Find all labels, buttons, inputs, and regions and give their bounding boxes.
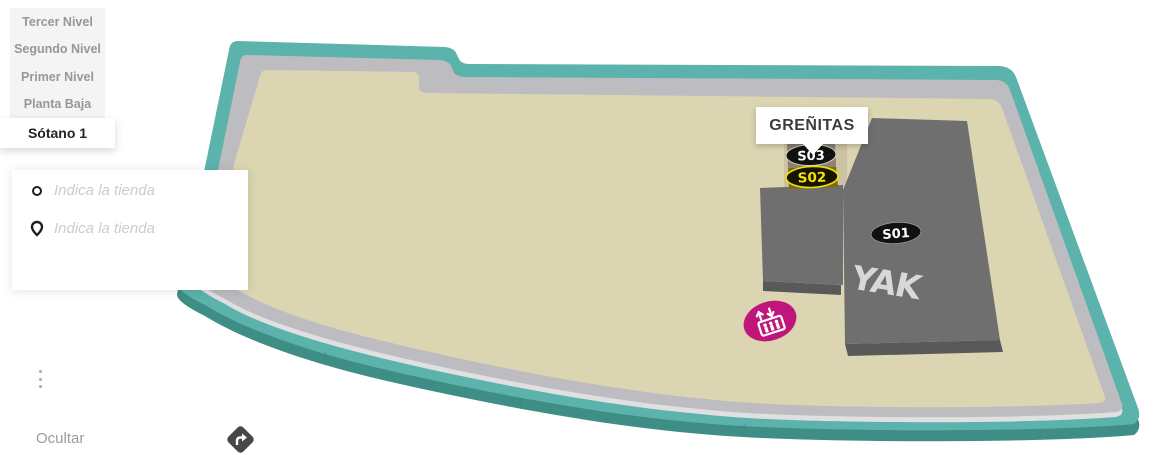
store-tooltip: GREÑITAS [756, 107, 868, 144]
origin-store-input[interactable] [54, 182, 224, 199]
route-search-card: Ocultar [12, 170, 248, 290]
destination-pin-icon [30, 220, 44, 237]
route-dots-icon [39, 370, 42, 388]
store-tooltip-label: GREÑITAS [769, 117, 854, 135]
hide-panel-link[interactable]: Ocultar [36, 430, 84, 447]
badge-s02-label: S02 [798, 170, 827, 187]
mall-map-page: S03 S02 S01 YAK [0, 0, 1169, 455]
destination-store-input[interactable] [54, 220, 224, 237]
tooltip-tail [803, 144, 823, 155]
store-block-left[interactable] [760, 185, 843, 285]
directions-arrow-icon [229, 428, 252, 451]
get-directions-button[interactable] [229, 428, 252, 451]
origin-point-icon [32, 186, 42, 196]
badge-s01-label: S01 [882, 226, 910, 243]
